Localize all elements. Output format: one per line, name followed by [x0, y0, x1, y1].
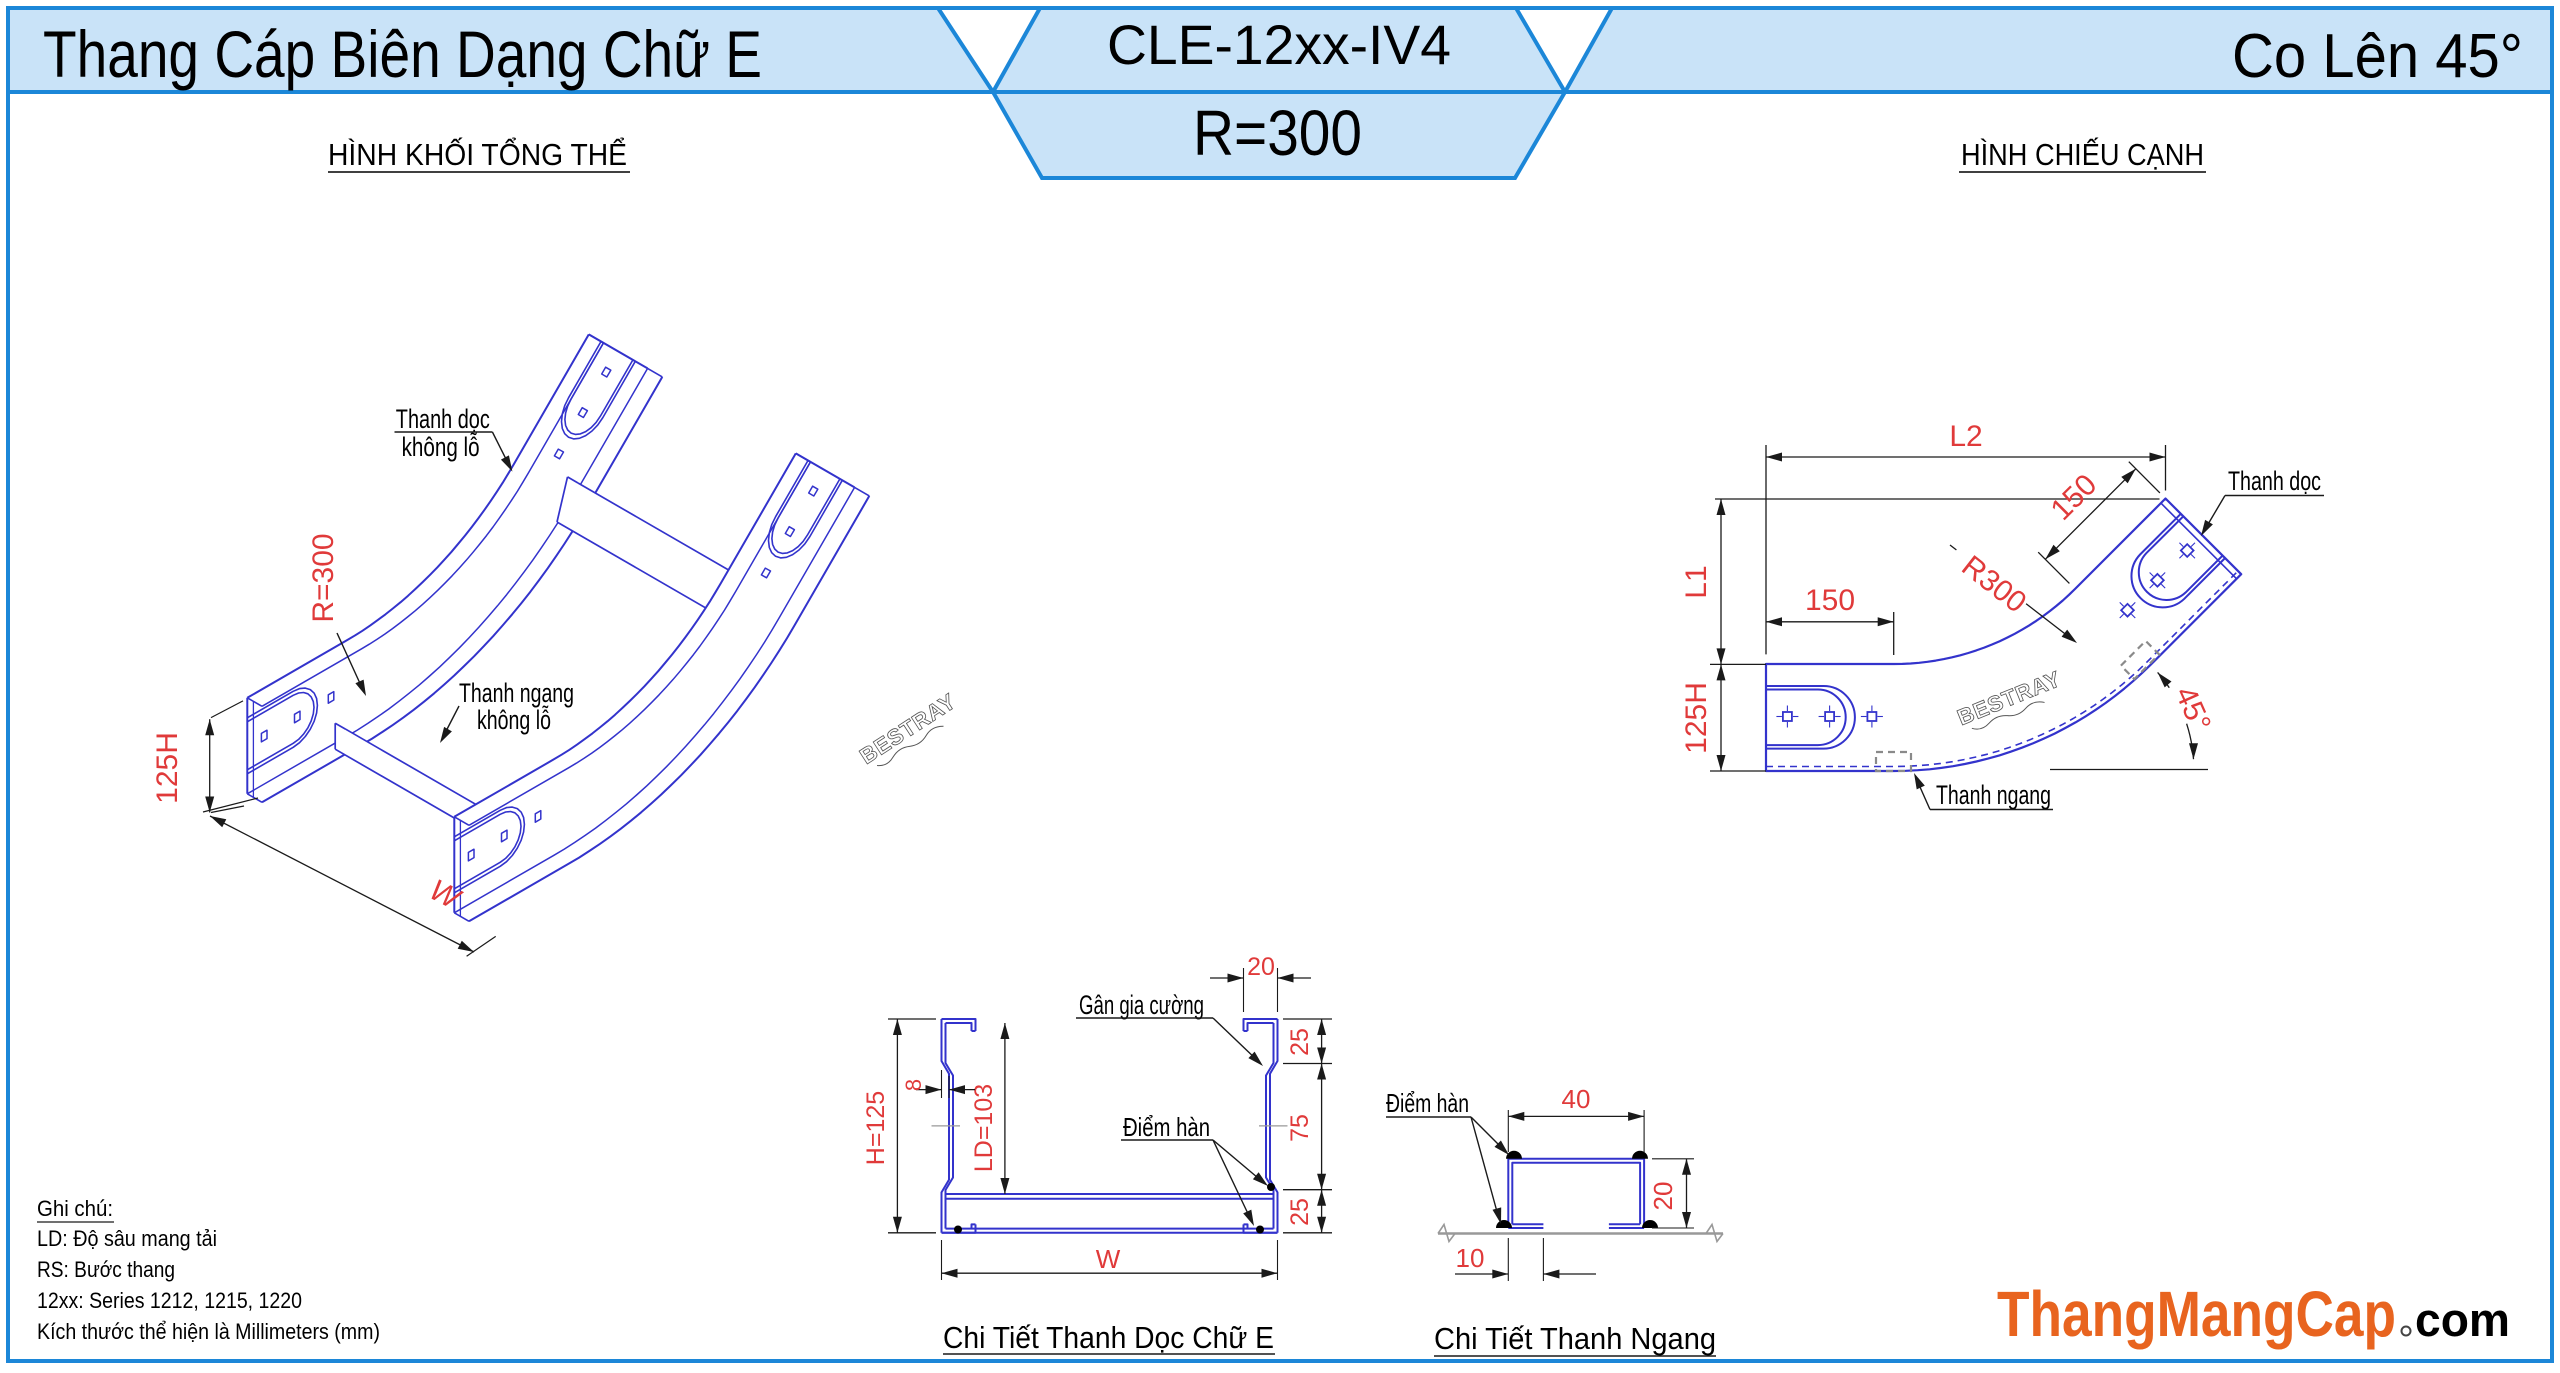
svg-text:R=300: R=300: [307, 533, 340, 622]
svg-text:Thanh dọc: Thanh dọc: [2228, 466, 2321, 496]
svg-text:125H: 125H: [151, 732, 184, 804]
svg-text:Điểm hàn: Điểm hàn: [1123, 1112, 1210, 1142]
svg-text:Thanh ngang: Thanh ngang: [459, 678, 574, 708]
svg-text:RS: Bước thang: RS: Bước thang: [37, 1257, 175, 1282]
svg-text:L2: L2: [1949, 420, 1982, 453]
svg-text:HÌNH CHIẾU CẠNH: HÌNH CHIẾU CẠNH: [1961, 137, 2204, 172]
svg-text:L1: L1: [1680, 565, 1713, 598]
svg-text:25: 25: [1286, 1028, 1314, 1056]
svg-text:Chi Tiết Thanh Ngang: Chi Tiết Thanh Ngang: [1434, 1321, 1716, 1356]
svg-text:25: 25: [1286, 1198, 1314, 1226]
svg-text:HÌNH KHỐI TỔNG THỂ: HÌNH KHỐI TỔNG THỂ: [328, 136, 627, 172]
svg-text:Thanh ngang: Thanh ngang: [1936, 780, 2051, 810]
svg-text:Gân gia cường: Gân gia cường: [1079, 990, 1204, 1020]
svg-text:12xx: Series 1212, 1215, 1220: 12xx: Series 1212, 1215, 1220: [37, 1288, 302, 1313]
svg-text:Kích thước thể hiện là Millime: Kích thước thể hiện là Millimeters (mm): [37, 1319, 380, 1344]
svg-text:150: 150: [1805, 584, 1855, 617]
svg-text:LD: Độ sâu mang tải: LD: Độ sâu mang tải: [37, 1226, 217, 1251]
svg-text:10: 10: [1456, 1243, 1485, 1273]
svg-text:125H: 125H: [1680, 682, 1713, 754]
svg-text:40: 40: [1562, 1084, 1591, 1114]
svg-text:20: 20: [1247, 953, 1275, 981]
svg-text:75: 75: [1286, 1114, 1314, 1142]
svg-text:Điểm hàn: Điểm hàn: [1386, 1088, 1469, 1118]
svg-text:W: W: [1096, 1244, 1121, 1274]
svg-text:com: com: [2415, 1293, 2510, 1346]
svg-text:H=125: H=125: [862, 1091, 890, 1165]
svg-text:8: 8: [901, 1079, 926, 1091]
svg-text:Thang Cáp Biên Dạng Chữ E: Thang Cáp Biên Dạng Chữ E: [43, 17, 762, 91]
svg-text:Chi Tiết Thanh Dọc Chữ E: Chi Tiết Thanh Dọc Chữ E: [943, 1320, 1274, 1355]
svg-text:Co Lên 45°: Co Lên 45°: [2232, 22, 2523, 91]
svg-text:LD=103: LD=103: [970, 1084, 998, 1172]
svg-text:không lỗ: không lỗ: [402, 431, 480, 462]
svg-text:CLE-12xx-IV4: CLE-12xx-IV4: [1107, 13, 1451, 76]
svg-text:20: 20: [1648, 1182, 1678, 1211]
svg-text:R=300: R=300: [1193, 97, 1362, 169]
svg-text:không lỗ: không lỗ: [477, 704, 551, 735]
svg-text:Thanh dọc: Thanh dọc: [396, 404, 490, 434]
svg-text:ThangMangCap: ThangMangCap: [1997, 1278, 2396, 1350]
svg-text:Ghi chú:: Ghi chú:: [37, 1196, 113, 1221]
